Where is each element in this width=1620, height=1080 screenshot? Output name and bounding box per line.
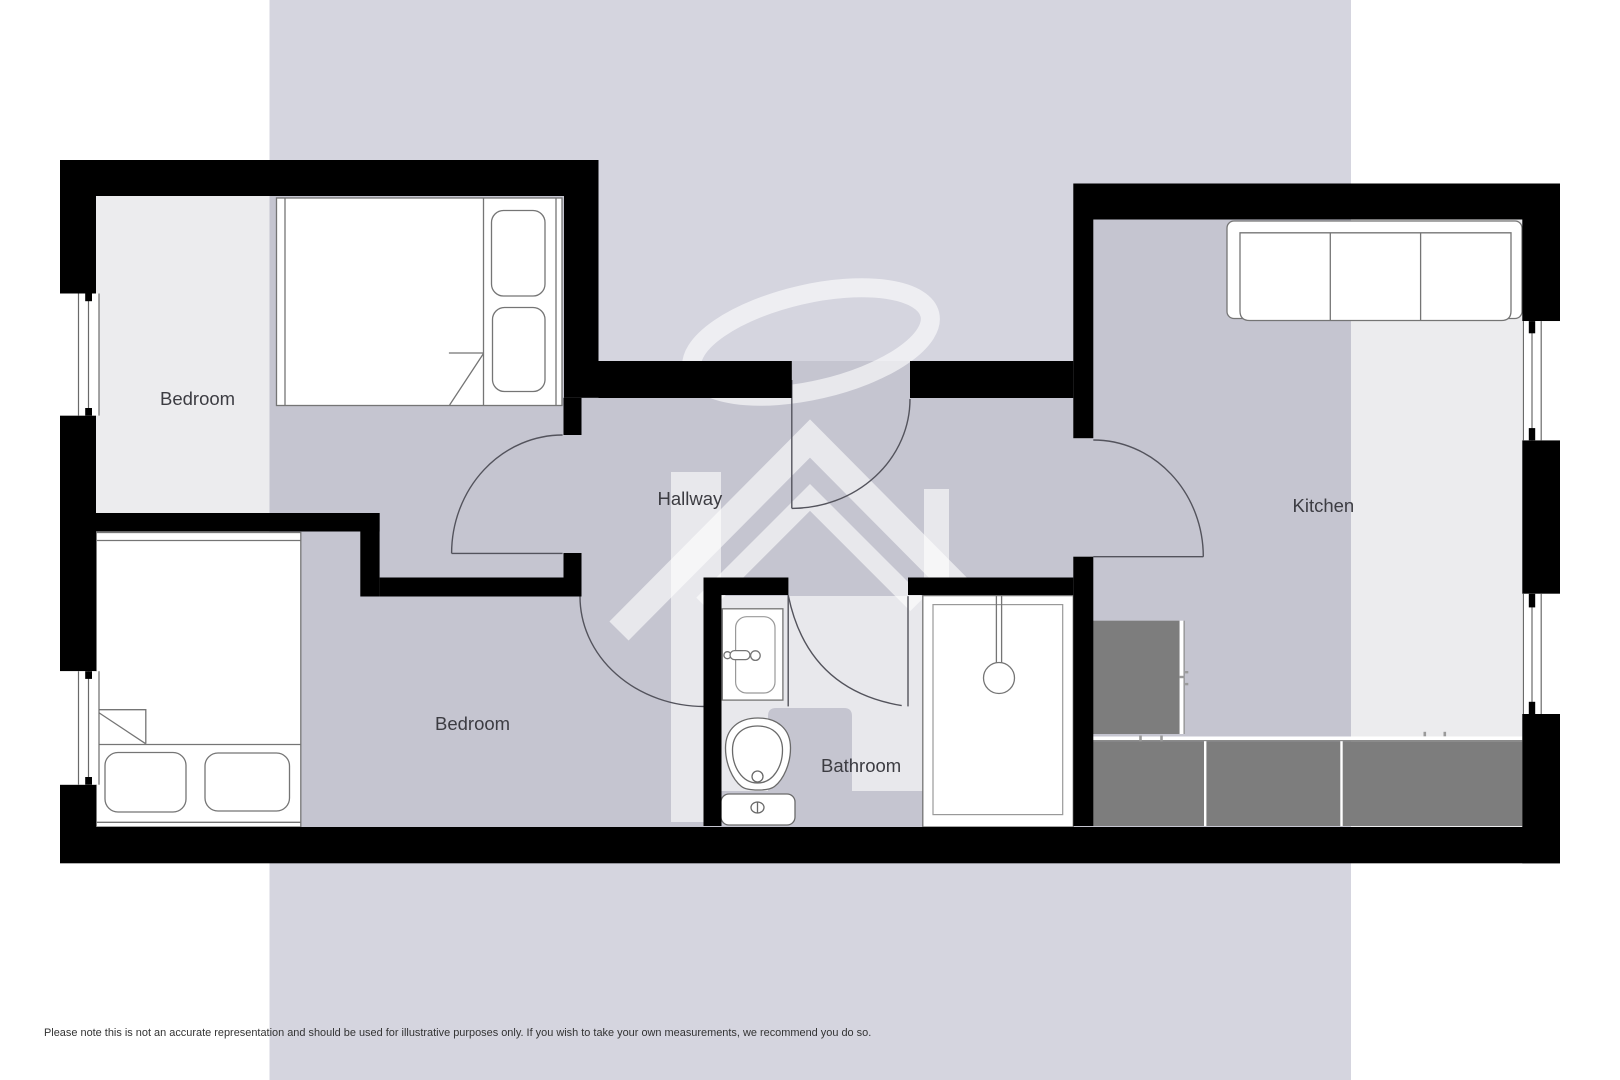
svg-text:Hallway: Hallway (658, 488, 724, 509)
svg-text:Bathroom: Bathroom (821, 755, 901, 776)
svg-text:Please note this is not an acc: Please note this is not an accurate repr… (44, 1027, 871, 1039)
svg-text:Kitchen: Kitchen (1293, 495, 1355, 516)
svg-text:Bedroom: Bedroom (160, 388, 235, 409)
svg-text:Bedroom: Bedroom (435, 713, 510, 734)
